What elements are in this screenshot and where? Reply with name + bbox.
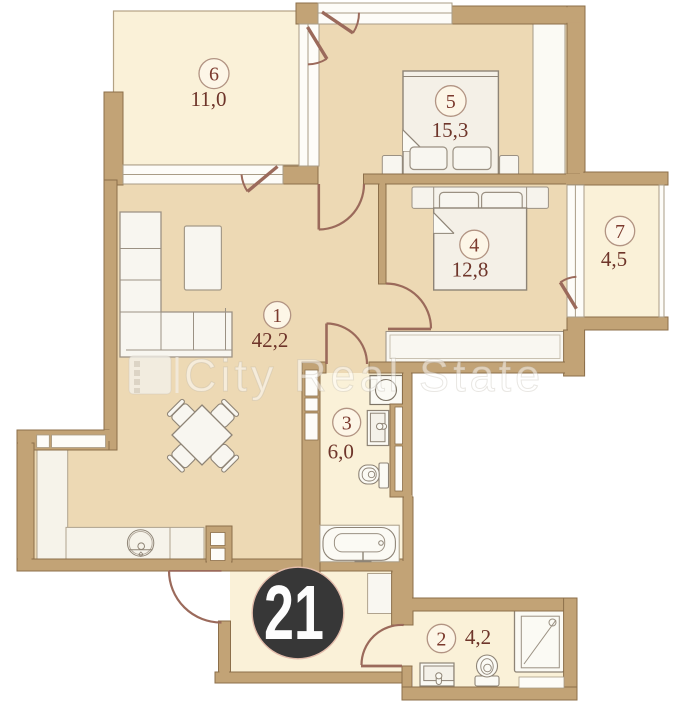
svg-text:1: 1: [272, 305, 282, 327]
svg-text:5: 5: [446, 91, 456, 113]
svg-text:6: 6: [209, 64, 219, 86]
svg-text:15,3: 15,3: [432, 118, 469, 142]
svg-text:City Real State: City Real State: [184, 350, 544, 401]
svg-text:4,2: 4,2: [465, 625, 491, 649]
svg-text:7: 7: [615, 221, 625, 243]
svg-text:3: 3: [342, 412, 352, 434]
svg-text:12,8: 12,8: [452, 258, 489, 282]
svg-text:42,2: 42,2: [252, 328, 289, 352]
svg-text:21: 21: [264, 571, 324, 657]
svg-text:4,5: 4,5: [601, 247, 627, 271]
svg-text:11,0: 11,0: [191, 87, 227, 111]
svg-text:4: 4: [469, 235, 479, 257]
svg-text:6,0: 6,0: [328, 440, 354, 464]
svg-text:2: 2: [436, 629, 446, 651]
